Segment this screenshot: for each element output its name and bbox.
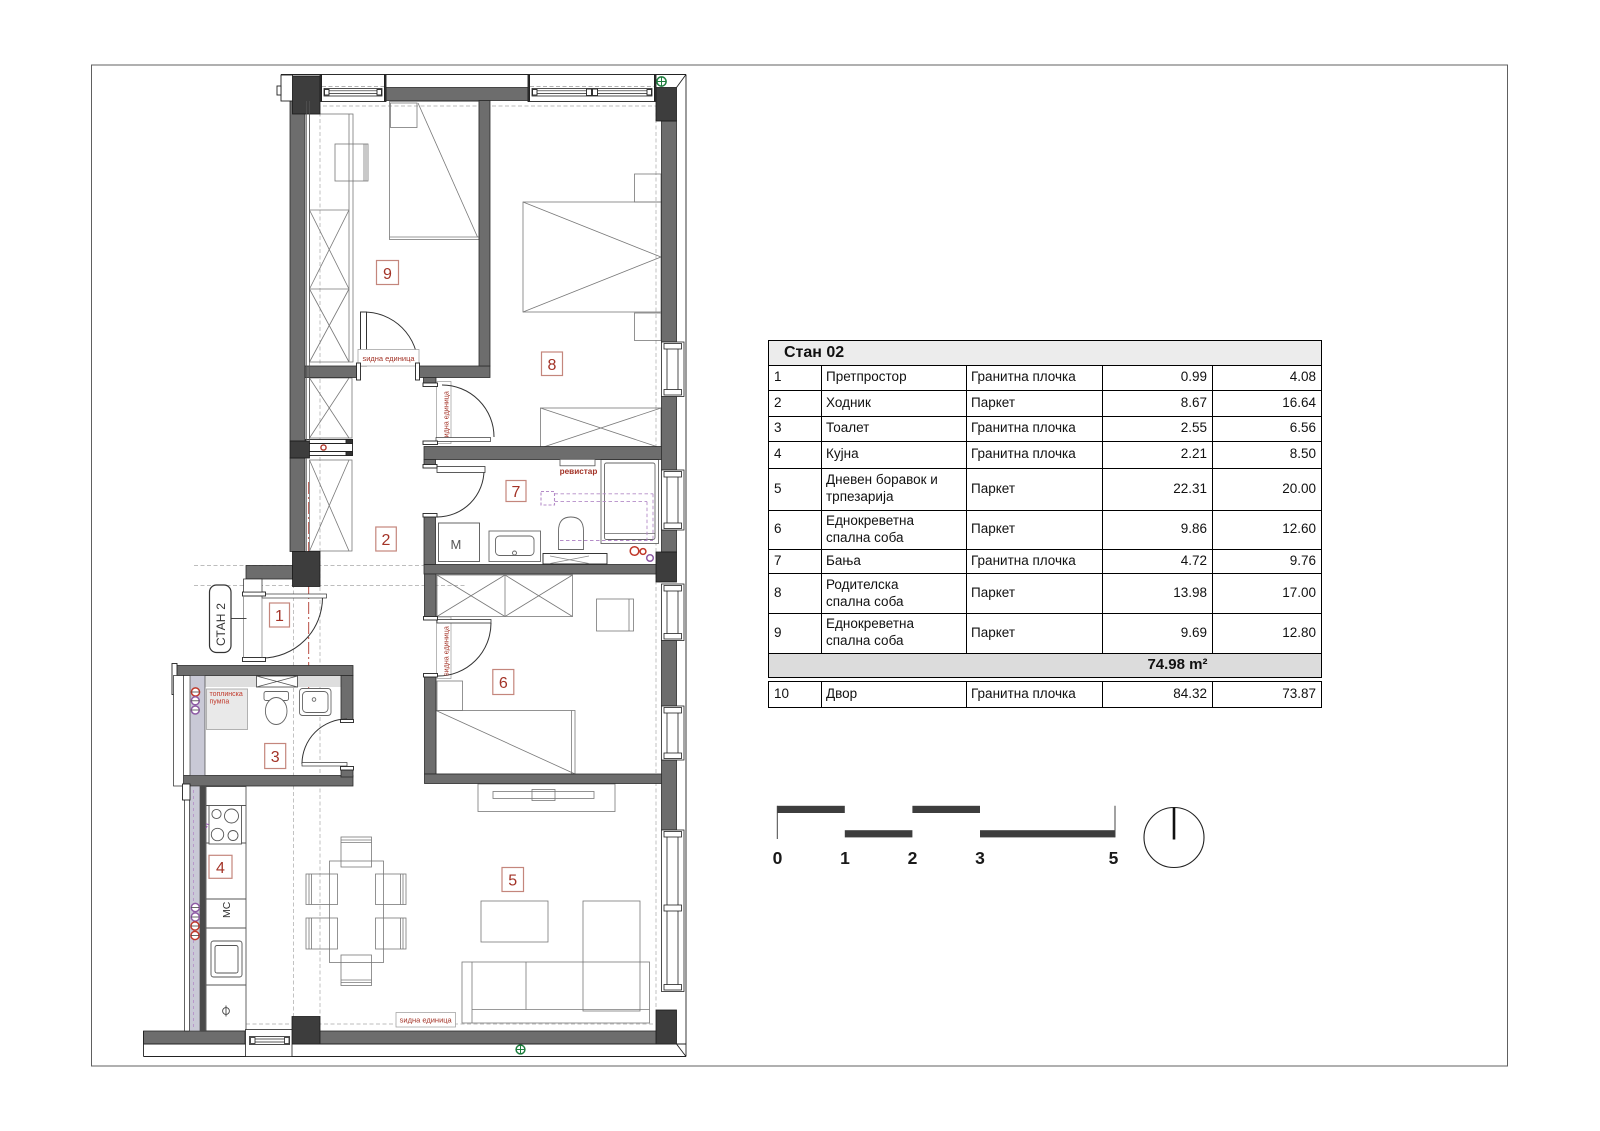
svg-text:пумпа: пумпа bbox=[210, 699, 230, 706]
svg-text:3: 3 bbox=[271, 749, 280, 766]
svg-text:1: 1 bbox=[275, 608, 284, 625]
svg-text:5: 5 bbox=[508, 873, 517, 890]
svg-text:6: 6 bbox=[499, 675, 508, 692]
svg-text:2: 2 bbox=[382, 532, 391, 549]
svg-text:3: 3 bbox=[975, 848, 985, 868]
svg-text:5: 5 bbox=[1109, 848, 1119, 868]
svg-text:8: 8 bbox=[548, 357, 557, 374]
svg-text:9: 9 bbox=[383, 266, 392, 283]
svg-text:ревистар: ревистар bbox=[560, 467, 598, 476]
svg-text:ѕидна единица: ѕидна единица bbox=[442, 626, 451, 676]
svg-text:0: 0 bbox=[773, 848, 783, 868]
svg-text:2: 2 bbox=[908, 848, 918, 868]
svg-text:7: 7 bbox=[512, 484, 521, 501]
svg-text:СТАН 2: СТАН 2 bbox=[214, 603, 228, 646]
svg-text:4: 4 bbox=[216, 860, 225, 877]
svg-text:1: 1 bbox=[840, 848, 850, 868]
svg-text:МС: МС bbox=[221, 901, 233, 918]
svg-text:ѕидна единица: ѕидна единица bbox=[400, 1016, 453, 1025]
svg-text:M: M bbox=[451, 537, 462, 552]
svg-text:ѕидна единица: ѕидна единица bbox=[362, 354, 415, 363]
svg-text:топлинска: топлинска bbox=[210, 691, 243, 698]
svg-text:ѕидна единица: ѕидна единица bbox=[442, 391, 451, 441]
